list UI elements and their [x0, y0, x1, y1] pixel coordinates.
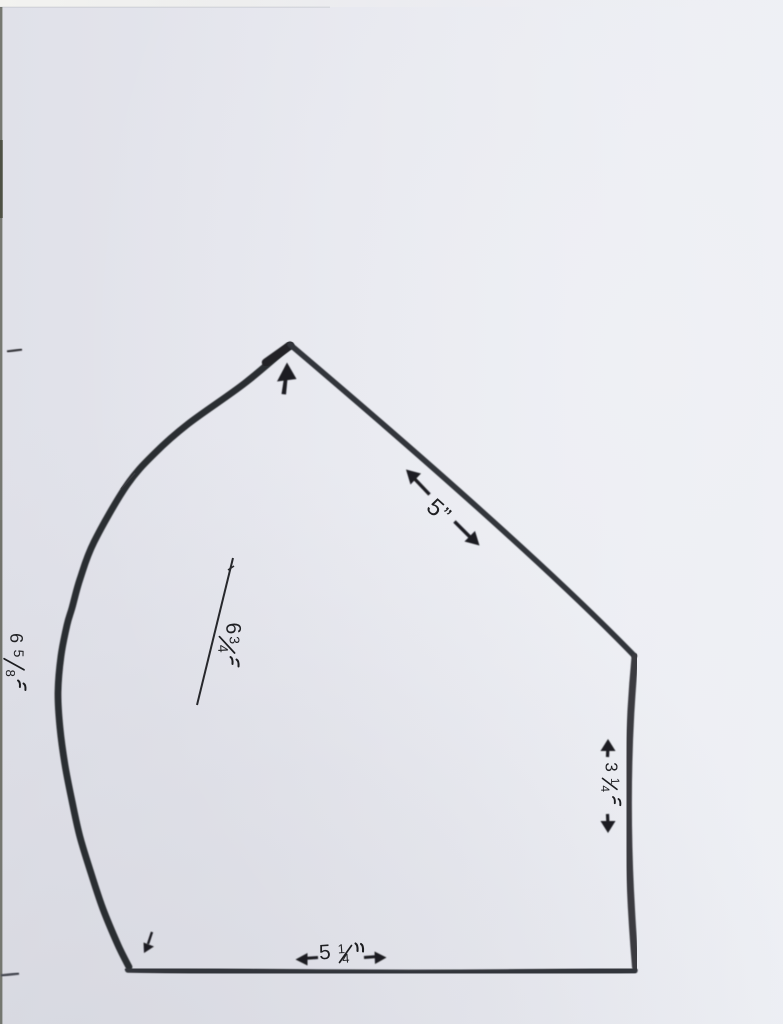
svg-text:4: 4: [215, 644, 231, 653]
svg-text:5: 5: [318, 941, 331, 965]
svg-text:4: 4: [598, 785, 612, 792]
svg-text:4: 4: [342, 951, 350, 966]
svg-text:5: 5: [11, 649, 27, 657]
svg-text:6: 6: [221, 622, 245, 635]
svg-text:3: 3: [227, 636, 243, 645]
svg-text:8: 8: [3, 669, 18, 676]
svg-text:6: 6: [6, 633, 26, 643]
svg-text:3: 3: [602, 762, 621, 772]
